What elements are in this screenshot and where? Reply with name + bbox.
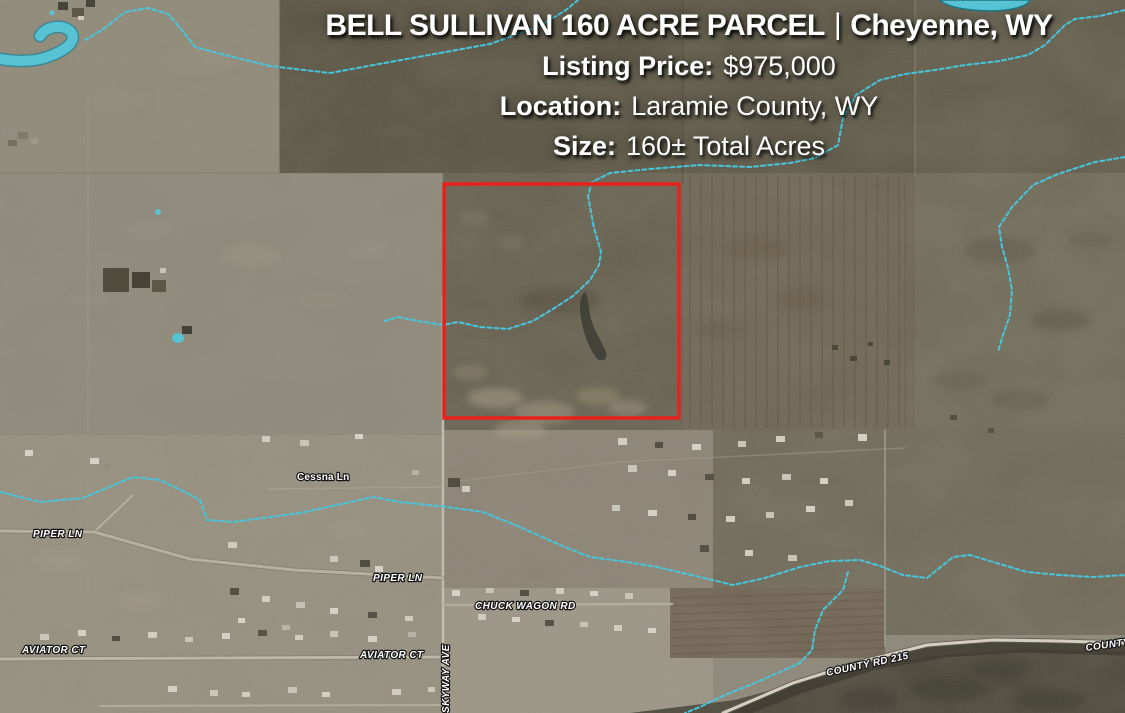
skyway-ave-label: SKYWAY AVE [441,644,452,713]
aerial-map: Cessna Ln PIPER LN PIPER LN CHUCK WAGON … [0,0,1125,713]
piper-ln-west-label: PIPER LN [33,529,83,540]
listing-flyer: Cessna Ln PIPER LN PIPER LN CHUCK WAGON … [0,0,1125,713]
aviator-ct-west-label: AVIATOR CT [21,645,86,656]
aviator-ct-east-label: AVIATOR CT [359,650,424,661]
chuck-wagon-rd-label: CHUCK WAGON RD [475,601,576,612]
cessna-ln-label: Cessna Ln [297,472,349,483]
piper-ln-east-label: PIPER LN [373,573,423,584]
